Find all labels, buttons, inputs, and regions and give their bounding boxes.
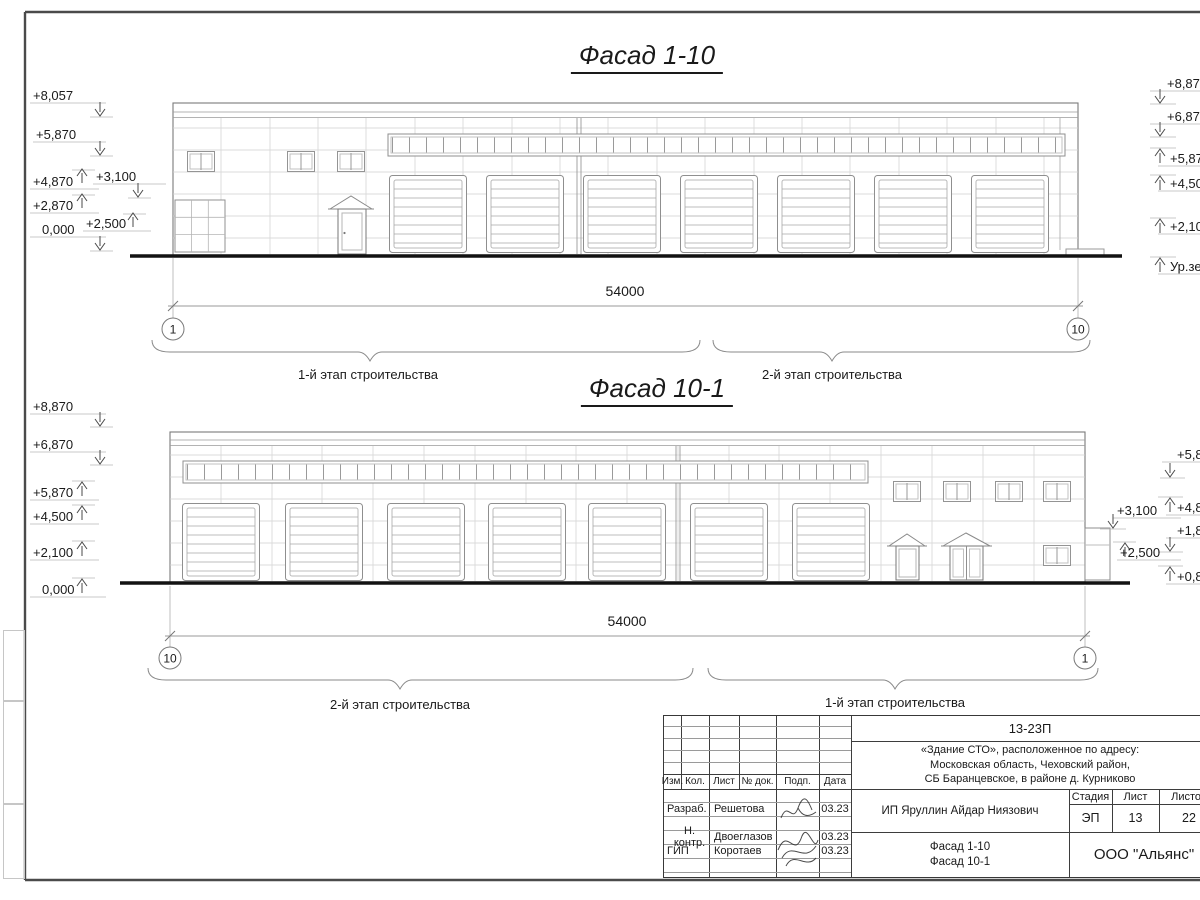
sectional-door: [183, 504, 260, 581]
stage-col-header: Стадия: [1069, 789, 1112, 804]
elevation-mark: +2,500: [86, 216, 126, 231]
dimension-bottom: 54000 10 1: [148, 586, 1098, 689]
sheet-title: Фасад 1-10 Фасад 10-1: [851, 840, 1069, 870]
elevation-marks-bottom-right: +3,100 +2,500 +5,8 +4,8 +1,8 +0,8: [1100, 447, 1200, 584]
elevation-marks-top-right: +8,870 +6,870 +5,870 +4,500 +2,100 Ур.зе…: [1150, 76, 1200, 274]
sectional-door: [286, 504, 363, 581]
sectional-door: [388, 504, 465, 581]
sectional-door: [487, 176, 564, 253]
grid-line: [664, 858, 851, 859]
elevation-mark: 0,000: [42, 582, 75, 597]
window-pair: [996, 482, 1023, 502]
row-role: Н. контр.: [664, 830, 712, 844]
col-header-izm: Изм.: [664, 774, 681, 789]
elevation-mark: +6,870: [33, 437, 73, 452]
elevation-mark: +4,8: [1177, 500, 1200, 515]
address-line: СБ Баранцевское, в районе д. Курниково: [851, 772, 1200, 787]
window-pair: [944, 482, 971, 502]
row-name: Двоеглазов: [711, 830, 779, 844]
stage-label: 1-й этап строительства: [825, 695, 965, 710]
sheet-title-line: Фасад 10-1: [851, 855, 1069, 870]
row-name: Коротаев: [711, 844, 779, 858]
elevation-mark: +4,500: [33, 509, 73, 524]
sectional-door: [691, 504, 768, 581]
sheet-number: 13: [1112, 804, 1159, 832]
facade-1-10-drawing: [130, 103, 1122, 256]
window-pair: [188, 152, 215, 172]
sectional-door: [584, 176, 661, 253]
dimension-value: 54000: [606, 283, 645, 299]
row-name: Решетова: [711, 802, 779, 816]
col-header-kol: Кол.: [681, 774, 709, 789]
window-pair: [894, 482, 921, 502]
doc-number: 13-23П: [851, 716, 1200, 741]
grid-line: [664, 750, 851, 751]
ribbon-window: [388, 134, 1065, 156]
axis-number: 10: [1071, 323, 1085, 337]
axis-number: 1: [1082, 652, 1089, 666]
stage-label: 2-й этап строительства: [330, 697, 470, 712]
dimension-value: 54000: [608, 613, 647, 629]
row-role: Разраб.: [664, 802, 712, 816]
elevation-mark: +3,100: [1117, 503, 1157, 518]
client-name: ИП Яруллин Айдар Ниязович: [851, 789, 1069, 832]
col-header-ndok: № док.: [739, 774, 776, 789]
dimension-top: 54000 1 10: [152, 258, 1090, 361]
ribbon-window: [183, 461, 868, 483]
sectional-door: [489, 504, 566, 581]
window-pair: [288, 152, 315, 172]
elevation-mark: +2,870: [33, 198, 73, 213]
sheet-title-line: Фасад 1-10: [851, 840, 1069, 855]
col-header-list: Лист: [709, 774, 739, 789]
sectional-door: [778, 176, 855, 253]
sectional-door: [875, 176, 952, 253]
elevation-mark: +2,100: [1170, 219, 1200, 234]
stage-brace: [152, 340, 700, 361]
window-pair: [1044, 482, 1071, 502]
sheets-total: 22: [1159, 804, 1200, 832]
elevation-mark: 0,000: [42, 222, 75, 237]
col-header-podp: Подп.: [776, 774, 819, 789]
stage-label: 2-й этап строительства: [762, 367, 902, 382]
grid-line: [664, 738, 851, 739]
window-pair: [338, 152, 365, 172]
sectional-door: [589, 504, 666, 581]
row-date: 03.23: [819, 830, 851, 844]
row-date: 03.23: [819, 844, 851, 858]
elevation-mark: +5,8: [1177, 447, 1200, 462]
sectional-door: [972, 176, 1049, 253]
elevation-mark: +6,870: [1167, 109, 1200, 124]
axis-number: 1: [170, 323, 177, 337]
stage-value: ЭП: [1069, 804, 1112, 832]
elevation-mark: +5,870: [33, 485, 73, 500]
elevation-mark: Ур.земли: [1170, 259, 1200, 274]
signature-scribble: [774, 820, 820, 872]
grid-line: [664, 726, 851, 727]
facade-top-title: Фасад 1-10: [571, 40, 723, 74]
stage-brace: [708, 668, 1098, 689]
elevation-mark: +4,870: [33, 174, 73, 189]
stage-label: 1-й этап строительства: [298, 367, 438, 382]
grid-line: [664, 872, 851, 873]
elevation-marks-top-left: +8,057 +5,870 +4,870 +3,100 +2,870 +2,50…: [30, 88, 166, 251]
axis-number: 10: [163, 652, 177, 666]
elevation-mark: +5,870: [36, 127, 76, 142]
margin-stamp-box: [3, 803, 25, 879]
elevation-mark: +4,500: [1170, 176, 1200, 191]
row-date: 03.23: [819, 802, 851, 816]
stage-brace: [713, 340, 1090, 361]
sheet-col-header: Лист: [1112, 789, 1159, 804]
address-line: Московская область, Чеховский район,: [851, 758, 1200, 773]
elevation-mark: +2,100: [33, 545, 73, 560]
address-line: «Здание СТО», расположенное по адресу:: [851, 743, 1200, 758]
facade-10-1-drawing: [120, 432, 1130, 583]
elevation-mark: +2,500: [1120, 545, 1160, 560]
elevation-mark: +8,870: [1167, 76, 1200, 91]
company-name: ООО "Альянс": [1069, 832, 1200, 877]
margin-stamp-box: [3, 700, 25, 805]
glazed-annex: [175, 200, 225, 252]
grid-line: [664, 816, 851, 817]
sheets-col-header: Листов: [1159, 789, 1200, 804]
elevation-mark: +8,870: [33, 399, 73, 414]
elevation-mark: +0,8: [1177, 569, 1200, 584]
grid-line: [851, 741, 1200, 742]
row-role: ГИП: [664, 844, 712, 858]
col-header-data: Дата: [819, 774, 851, 789]
side-step: [1066, 249, 1104, 255]
sectional-door: [681, 176, 758, 253]
grid-line: [664, 762, 851, 763]
elevation-marks-bottom-left: +8,870 +6,870 +5,870 +4,500 +2,100 0,000: [30, 399, 113, 597]
elevation-mark: +8,057: [33, 88, 73, 103]
title-block: Изм. Кол. Лист № док. Подп. Дата Разраб.…: [663, 715, 1200, 878]
side-annex: [1085, 528, 1110, 580]
sectional-door: [390, 176, 467, 253]
window-pair: [1044, 546, 1071, 566]
stage-brace: [148, 668, 693, 689]
facade-bottom-title: Фасад 10-1: [581, 373, 733, 407]
margin-stamp-box: [3, 630, 25, 702]
elevation-mark: +3,100: [96, 169, 136, 184]
elevation-mark: +1,8: [1177, 523, 1200, 538]
project-address: «Здание СТО», расположенное по адресу: М…: [851, 743, 1200, 787]
drawing-sheet: 54000 1 10 +8,057 +5,870 +4,870 +3,100 +…: [0, 0, 1200, 900]
sectional-door: [793, 504, 870, 581]
elevation-mark: +5,870: [1170, 151, 1200, 166]
